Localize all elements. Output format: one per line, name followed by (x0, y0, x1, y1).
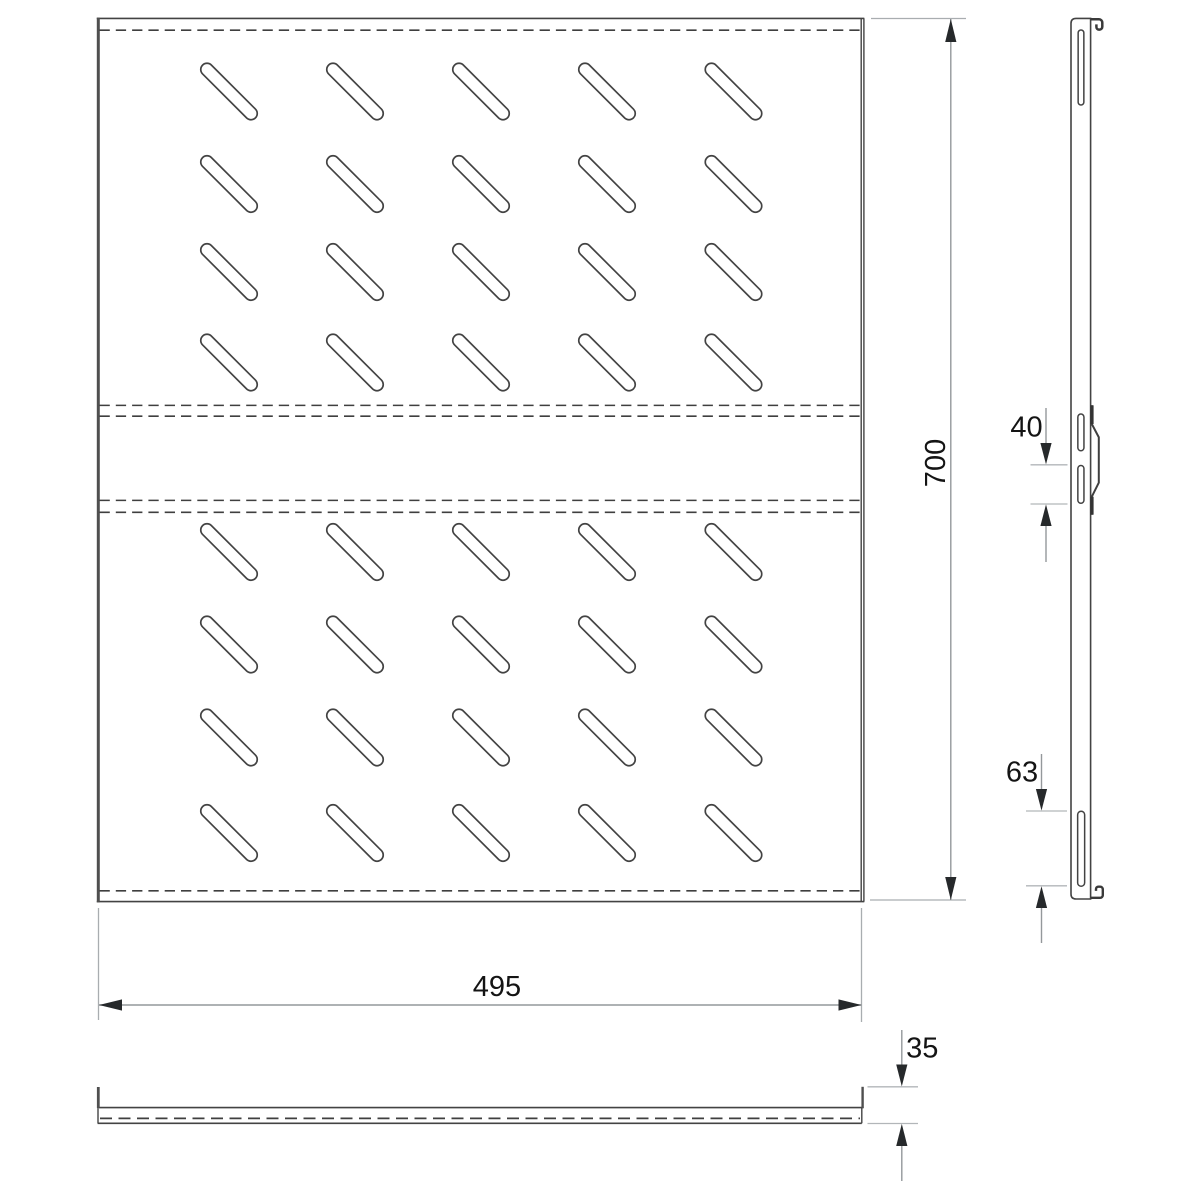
svg-text:700: 700 (920, 439, 952, 487)
svg-text:40: 40 (1010, 411, 1042, 443)
svg-text:63: 63 (1006, 757, 1038, 789)
svg-text:35: 35 (906, 1032, 938, 1064)
svg-text:495: 495 (473, 971, 521, 1003)
